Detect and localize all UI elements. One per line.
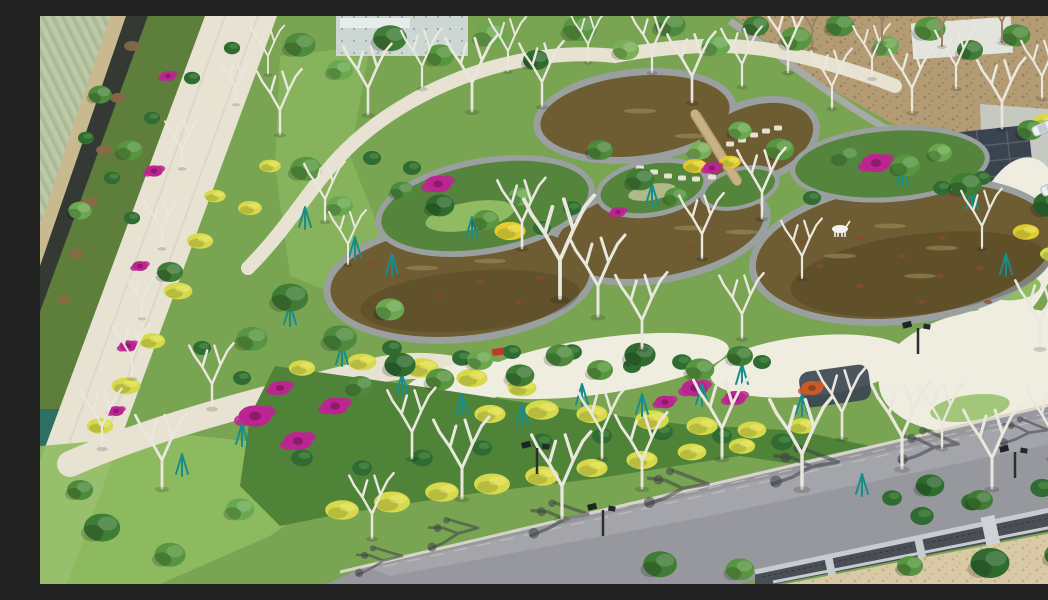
water-reflection [474, 259, 506, 264]
shrub-dark [882, 490, 902, 505]
water-speck [898, 254, 906, 258]
shrub-dark [352, 460, 372, 475]
water-speck [984, 300, 992, 304]
water-speck [816, 264, 824, 268]
water-reflection [926, 246, 958, 251]
water-speck [856, 284, 864, 288]
water-speck [976, 266, 984, 270]
bush-yellow [635, 410, 669, 430]
shrub-dark [144, 112, 160, 125]
shrub-dark [363, 151, 381, 165]
stepping-stone [664, 174, 672, 179]
stepping-stone [708, 175, 716, 180]
water-speck [476, 280, 484, 284]
water-speck [514, 300, 522, 304]
water-speck [368, 260, 376, 264]
park-aerial-photo [40, 16, 1048, 584]
bush-yellow [729, 438, 755, 453]
water-reflection [726, 230, 758, 235]
bush-yellow [289, 360, 315, 375]
stepping-stone [726, 142, 734, 147]
water-reflection [874, 224, 906, 229]
park-scene-svg [40, 16, 1048, 584]
bush-yellow [238, 201, 262, 215]
stepping-stone [692, 177, 700, 182]
water-speck [436, 294, 444, 298]
shrub-dark [403, 161, 421, 175]
shrub-dark [184, 72, 200, 85]
water-reflection [406, 266, 438, 271]
bush-yellow [474, 474, 510, 495]
shrub-dark [224, 42, 240, 55]
water-speck [536, 276, 544, 280]
water-speck [936, 274, 944, 278]
shrub-dark [472, 440, 492, 455]
stepping-stone [762, 129, 770, 134]
water-reflection [624, 109, 656, 114]
shrub-dark [910, 507, 933, 525]
bush-yellow [1013, 224, 1039, 239]
bush-yellow [456, 369, 487, 387]
bush-yellow [348, 354, 377, 371]
water-speck [686, 244, 694, 248]
water-speck [918, 300, 926, 304]
shrub-dark [104, 172, 120, 185]
water-reflection [674, 226, 706, 231]
bush-yellow [204, 190, 226, 203]
bush-yellow [686, 417, 717, 435]
bush-yellow [425, 482, 459, 502]
bush-yellow [525, 400, 559, 420]
shrub-dark [78, 132, 94, 145]
bush-yellow [187, 233, 213, 248]
bush-yellow [259, 160, 281, 173]
stepping-stone [678, 176, 686, 181]
water-reflection [674, 134, 706, 139]
shrub-dark [803, 191, 821, 205]
water-speck [856, 236, 864, 240]
bush-yellow [325, 500, 359, 520]
water-reflection [904, 274, 936, 279]
shrub-dark [753, 355, 771, 369]
stepping-stone [774, 126, 782, 131]
bush-yellow [164, 283, 193, 300]
shrub-dark [233, 371, 251, 385]
water-speck [938, 236, 946, 240]
shrub-dark [291, 450, 313, 467]
water-reflection [824, 254, 856, 259]
stepping-stone [750, 133, 758, 138]
water-speck [798, 240, 806, 244]
shrub-dark [503, 345, 521, 359]
shrub-dark [124, 212, 140, 225]
bush-yellow [474, 405, 505, 423]
bush-yellow [678, 444, 707, 461]
bush-yellow [738, 422, 767, 439]
shrub-dark [193, 341, 211, 355]
shrub-dark [771, 434, 793, 451]
